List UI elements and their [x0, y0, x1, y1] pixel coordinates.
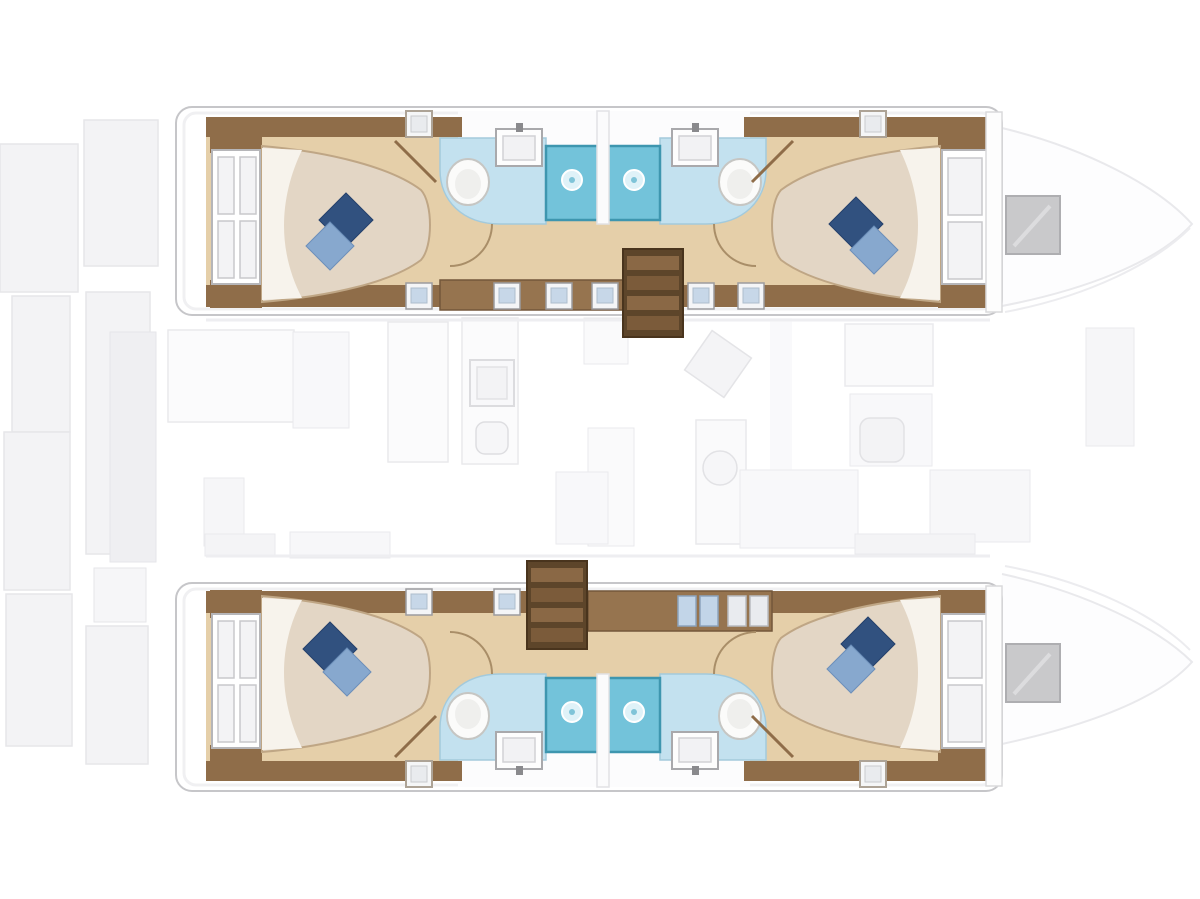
sink-faucet	[692, 123, 699, 132]
center-bulkhead	[597, 674, 609, 787]
ghost-settee	[930, 470, 1030, 542]
stair-step	[531, 588, 583, 602]
bottle-locker	[728, 596, 746, 626]
floorplan-canvas	[0, 0, 1200, 899]
ghost-cockpit-bench-cushion	[110, 332, 156, 562]
window-trim	[210, 745, 262, 773]
ghost-salon-seat	[293, 332, 349, 428]
ghost-stove-inner	[477, 367, 507, 399]
window-pane	[240, 157, 256, 214]
ghost-galley-counter	[388, 322, 448, 462]
stair-step	[531, 628, 583, 642]
ghost-chart-table	[740, 470, 858, 548]
window-pane	[218, 685, 234, 742]
toilet-icon-inner	[727, 169, 753, 199]
shower-head-dot	[631, 177, 637, 183]
window-pane	[948, 222, 982, 279]
ghost-companionway	[556, 472, 608, 544]
ghost-nav-seat	[703, 451, 737, 485]
window-pane	[240, 221, 256, 278]
stair-step	[531, 568, 583, 582]
window-pane	[218, 621, 234, 678]
ghost-salon-table	[168, 330, 294, 422]
locker-hatch-inner	[411, 594, 427, 609]
window-pane	[240, 621, 256, 678]
ghost-transom-step	[84, 120, 158, 266]
center-bulkhead	[597, 111, 609, 224]
ghost-settee	[855, 534, 975, 554]
locker-hatch-inner	[411, 288, 427, 303]
bottle-locker	[700, 596, 718, 626]
locker-hatch-inner	[597, 288, 613, 303]
ghost-foredeck-locker	[1086, 328, 1134, 446]
locker-hatch-inner	[551, 288, 567, 303]
hull-bow-bulkhead	[986, 586, 1002, 786]
ghost-cabinet	[584, 318, 628, 364]
ghost-transom-step	[0, 144, 78, 292]
toilet-icon-inner	[455, 169, 481, 199]
toilet-icon-inner	[727, 699, 753, 729]
window-pane	[948, 685, 982, 742]
deck-hatch-inner	[865, 766, 881, 782]
stair-step	[627, 276, 679, 290]
ghost-aft-platform	[4, 432, 70, 590]
ghost-basin	[860, 418, 904, 462]
window-trim	[210, 125, 262, 153]
hull-bow-bulkhead	[986, 112, 1002, 312]
bottle-locker	[678, 596, 696, 626]
stair-step	[627, 256, 679, 270]
ghost-aft-locker	[12, 296, 70, 432]
ghost-galley-sink	[476, 422, 508, 454]
ghost-nav-chair	[685, 331, 752, 398]
shower-head-dot	[631, 709, 637, 715]
sink-basin	[503, 738, 535, 762]
window-pane	[948, 158, 982, 215]
shower-head-dot	[569, 709, 575, 715]
sink-faucet	[516, 123, 523, 132]
window-trim	[938, 125, 990, 153]
sink-basin	[679, 136, 711, 160]
stair-step	[627, 296, 679, 310]
catamaran-floorplan	[0, 0, 1200, 899]
ghost-aft-seat	[86, 626, 148, 764]
bottom-hull	[176, 561, 1060, 791]
ghost-sideboard	[845, 324, 933, 386]
ghost-salon-sofa	[290, 532, 390, 558]
ghost-aft-table	[94, 568, 146, 622]
window-pane	[218, 157, 234, 214]
shower-head-dot	[569, 177, 575, 183]
window-pane	[948, 621, 982, 678]
top-hull	[176, 107, 1060, 337]
deck-hatch-inner	[411, 766, 427, 782]
sink-basin	[503, 136, 535, 160]
ghost-salon-sofa	[205, 534, 275, 556]
window-trim	[938, 745, 990, 773]
toilet-icon-inner	[455, 699, 481, 729]
window-pane	[240, 685, 256, 742]
deck-hatch-inner	[411, 116, 427, 132]
locker-hatch-inner	[499, 594, 515, 609]
bottle-locker	[750, 596, 768, 626]
ghost-aft-box	[6, 594, 72, 746]
sink-basin	[679, 738, 711, 762]
sink-faucet	[692, 766, 699, 775]
stair-step	[627, 316, 679, 330]
deck-hatch-inner	[865, 116, 881, 132]
window-pane	[218, 221, 234, 278]
sink-faucet	[516, 766, 523, 775]
locker-hatch-inner	[743, 288, 759, 303]
stair-step	[531, 608, 583, 622]
locker-hatch-inner	[499, 288, 515, 303]
locker-hatch-inner	[693, 288, 709, 303]
